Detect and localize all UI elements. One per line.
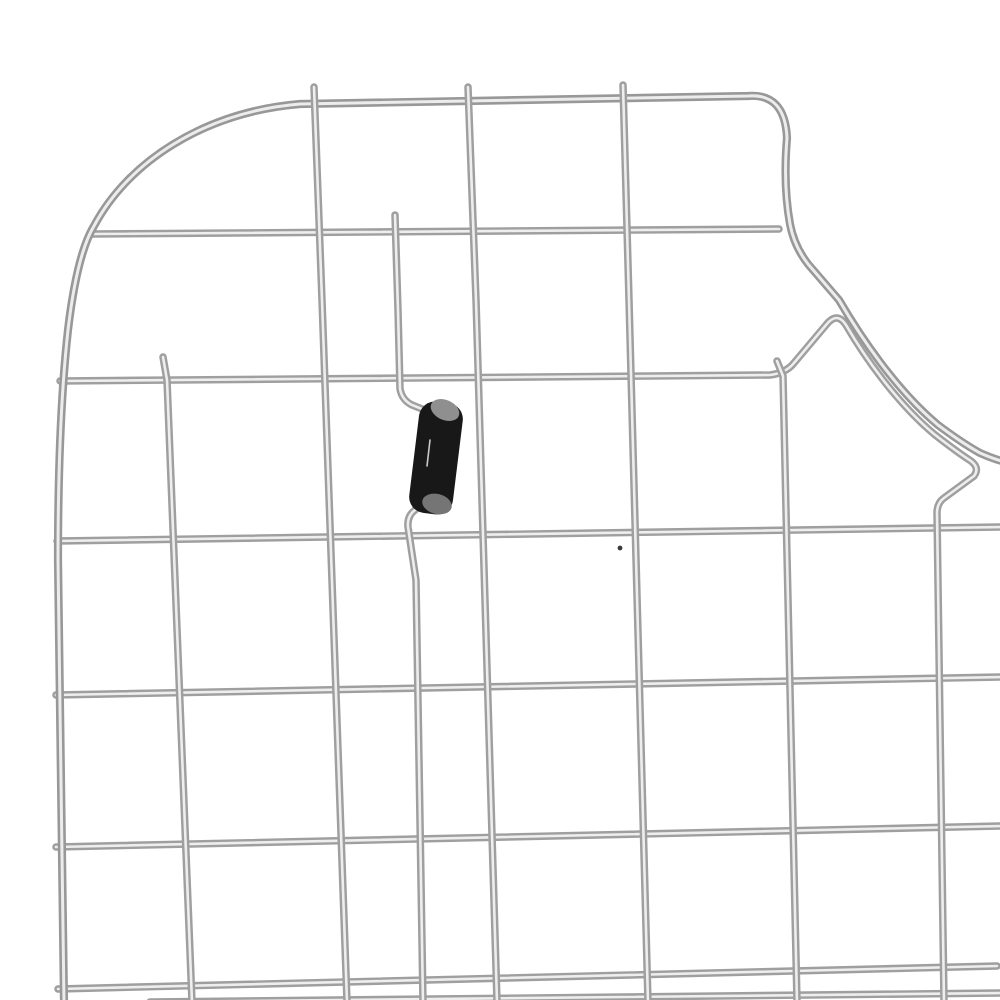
product-photo (0, 0, 1000, 1000)
dust-speck (618, 546, 623, 551)
sink-grid-svg (0, 0, 1000, 1000)
photo-background (0, 0, 1000, 1000)
